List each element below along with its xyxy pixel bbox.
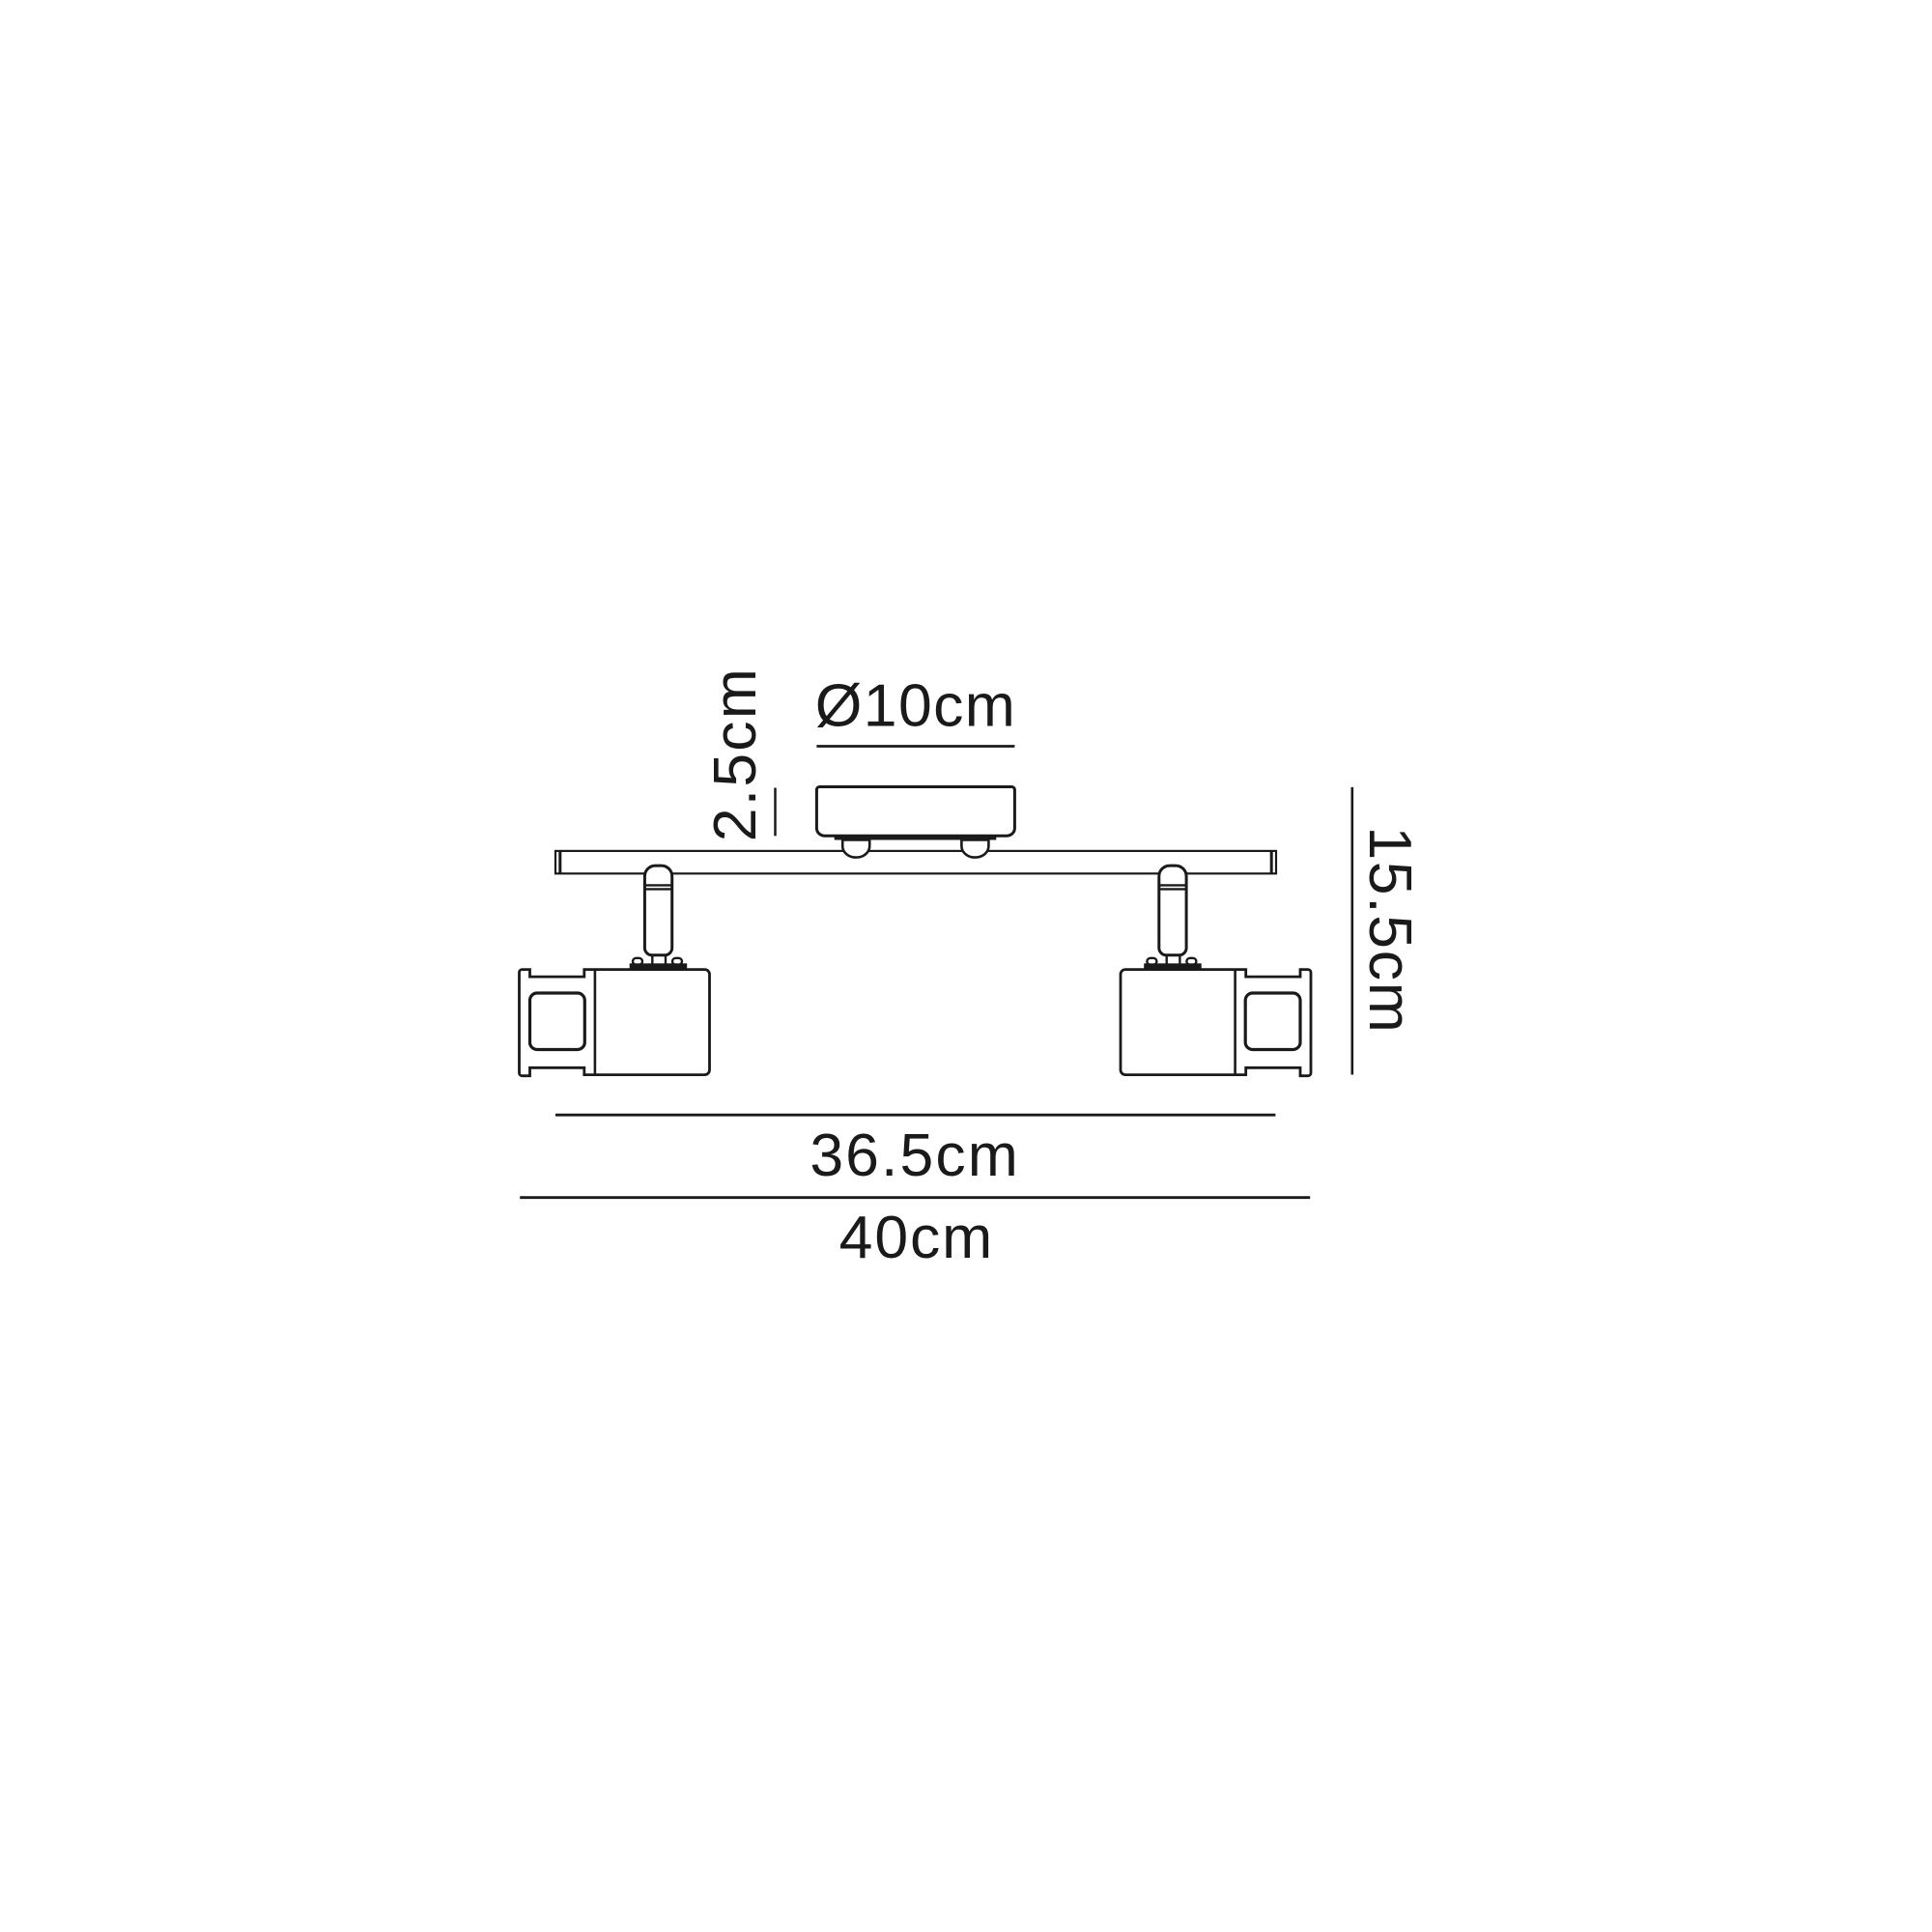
svg-text:Ø10cm: Ø10cm — [815, 672, 1016, 740]
svg-text:40cm: 40cm — [839, 1204, 994, 1271]
svg-text:2.5cm: 2.5cm — [701, 667, 769, 841]
svg-text:36.5cm: 36.5cm — [810, 1122, 1020, 1189]
svg-text:15.5cm: 15.5cm — [1356, 826, 1424, 1034]
